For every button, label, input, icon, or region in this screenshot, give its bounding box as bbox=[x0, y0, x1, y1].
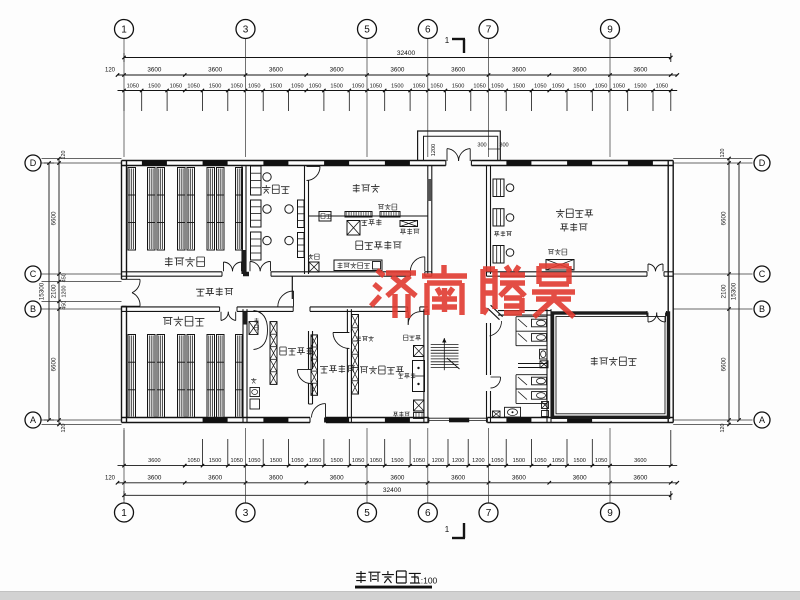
svg-text:9: 9 bbox=[607, 508, 613, 519]
svg-text:6600: 6600 bbox=[721, 357, 728, 372]
svg-text:3600: 3600 bbox=[208, 474, 223, 481]
svg-text:1500: 1500 bbox=[513, 83, 525, 89]
svg-text:1: 1 bbox=[445, 525, 450, 534]
svg-text:120: 120 bbox=[720, 149, 726, 158]
svg-text:3600: 3600 bbox=[390, 474, 405, 481]
svg-text:3600: 3600 bbox=[634, 458, 646, 464]
svg-text:6: 6 bbox=[425, 25, 431, 36]
svg-text:3600: 3600 bbox=[633, 474, 648, 481]
svg-text:B: B bbox=[759, 304, 765, 314]
svg-text:1500: 1500 bbox=[148, 83, 160, 89]
svg-text:7: 7 bbox=[486, 508, 492, 519]
svg-text:1050: 1050 bbox=[352, 458, 364, 464]
svg-text:1050: 1050 bbox=[534, 83, 546, 89]
svg-text:1050: 1050 bbox=[291, 83, 303, 89]
svg-text:1500: 1500 bbox=[209, 83, 221, 89]
svg-text:1050: 1050 bbox=[170, 83, 182, 89]
svg-text:120: 120 bbox=[105, 475, 116, 481]
svg-text:3600: 3600 bbox=[208, 67, 223, 74]
svg-text:3600: 3600 bbox=[330, 474, 345, 481]
svg-text:1050: 1050 bbox=[595, 458, 607, 464]
svg-text:1050: 1050 bbox=[370, 458, 382, 464]
svg-text:1500: 1500 bbox=[209, 458, 221, 464]
svg-text:1200: 1200 bbox=[472, 458, 484, 464]
svg-text:3: 3 bbox=[243, 25, 249, 36]
svg-text:32400: 32400 bbox=[397, 50, 416, 57]
svg-text:1050: 1050 bbox=[656, 83, 668, 89]
svg-text:3600: 3600 bbox=[451, 474, 466, 481]
svg-text:1050: 1050 bbox=[352, 83, 364, 89]
svg-text:3600: 3600 bbox=[147, 474, 162, 481]
svg-text:1050: 1050 bbox=[430, 83, 442, 89]
svg-text:1050: 1050 bbox=[595, 83, 607, 89]
svg-text:3600: 3600 bbox=[269, 67, 284, 74]
svg-text:2100: 2100 bbox=[721, 284, 728, 299]
svg-text:1050: 1050 bbox=[248, 83, 260, 89]
svg-text:6: 6 bbox=[425, 508, 431, 519]
svg-text:15300: 15300 bbox=[39, 282, 46, 300]
svg-text:1: 1 bbox=[121, 508, 127, 519]
svg-text:1050: 1050 bbox=[613, 83, 625, 89]
svg-text:15300: 15300 bbox=[731, 282, 738, 300]
svg-text:1050: 1050 bbox=[248, 458, 260, 464]
svg-text:32400: 32400 bbox=[383, 487, 402, 494]
svg-text:3600: 3600 bbox=[330, 67, 345, 74]
svg-text:1200: 1200 bbox=[62, 286, 68, 298]
svg-text:5: 5 bbox=[364, 25, 370, 36]
svg-text:1050: 1050 bbox=[187, 458, 199, 464]
svg-text:1050: 1050 bbox=[127, 83, 139, 89]
svg-text:3600: 3600 bbox=[512, 474, 527, 481]
svg-text:2100: 2100 bbox=[51, 284, 58, 299]
svg-text:1500: 1500 bbox=[452, 83, 464, 89]
svg-text:3600: 3600 bbox=[269, 474, 284, 481]
svg-text:1050: 1050 bbox=[413, 83, 425, 89]
svg-text:450: 450 bbox=[62, 301, 68, 310]
svg-text:1050: 1050 bbox=[534, 458, 546, 464]
svg-text:3600: 3600 bbox=[390, 67, 405, 74]
svg-text:3600: 3600 bbox=[147, 67, 162, 74]
svg-text:1500: 1500 bbox=[513, 458, 525, 464]
svg-text:1200: 1200 bbox=[432, 458, 444, 464]
svg-text:1050: 1050 bbox=[309, 83, 321, 89]
svg-text:1050: 1050 bbox=[491, 83, 503, 89]
svg-text:C: C bbox=[30, 269, 37, 279]
svg-text:3600: 3600 bbox=[573, 474, 588, 481]
svg-text:1050: 1050 bbox=[230, 458, 242, 464]
svg-text:7: 7 bbox=[486, 25, 492, 36]
svg-text:1500: 1500 bbox=[391, 458, 403, 464]
svg-text:6600: 6600 bbox=[721, 211, 728, 226]
svg-text:1050: 1050 bbox=[413, 458, 425, 464]
svg-text:D: D bbox=[30, 158, 37, 168]
svg-text:1050: 1050 bbox=[473, 83, 485, 89]
svg-text:1050: 1050 bbox=[230, 83, 242, 89]
svg-text:1500: 1500 bbox=[330, 458, 342, 464]
svg-text:3600: 3600 bbox=[633, 67, 648, 74]
svg-text:300: 300 bbox=[477, 143, 486, 149]
svg-text:1: 1 bbox=[121, 25, 127, 36]
svg-text:3600: 3600 bbox=[451, 67, 466, 74]
svg-text:1050: 1050 bbox=[291, 458, 303, 464]
svg-text:1500: 1500 bbox=[270, 83, 282, 89]
svg-text:1500: 1500 bbox=[634, 83, 646, 89]
svg-text:1:100: 1:100 bbox=[416, 576, 438, 586]
svg-text:1050: 1050 bbox=[309, 458, 321, 464]
svg-text:1500: 1500 bbox=[270, 458, 282, 464]
svg-text:1: 1 bbox=[445, 36, 450, 45]
svg-text:1050: 1050 bbox=[187, 83, 199, 89]
svg-text:3600: 3600 bbox=[148, 458, 160, 464]
svg-text:5: 5 bbox=[364, 508, 370, 519]
svg-text:1050: 1050 bbox=[491, 458, 503, 464]
svg-text:6600: 6600 bbox=[51, 357, 58, 372]
svg-text:1500: 1500 bbox=[573, 83, 585, 89]
svg-text:D: D bbox=[759, 158, 766, 168]
svg-text:1200: 1200 bbox=[452, 458, 464, 464]
svg-text:3: 3 bbox=[243, 508, 249, 519]
svg-text:A: A bbox=[759, 415, 765, 425]
svg-text:1050: 1050 bbox=[370, 83, 382, 89]
svg-text:120: 120 bbox=[105, 68, 116, 74]
svg-text:A: A bbox=[30, 415, 36, 425]
svg-text:1050: 1050 bbox=[552, 83, 564, 89]
svg-text:300: 300 bbox=[499, 143, 508, 149]
svg-text:6600: 6600 bbox=[51, 211, 58, 226]
svg-text:1050: 1050 bbox=[552, 458, 564, 464]
svg-text:1500: 1500 bbox=[573, 458, 585, 464]
svg-text:B: B bbox=[30, 304, 36, 314]
svg-text:1200: 1200 bbox=[431, 144, 437, 156]
svg-text:C: C bbox=[759, 269, 766, 279]
svg-text:450: 450 bbox=[62, 273, 68, 282]
svg-text:3600: 3600 bbox=[512, 67, 527, 74]
svg-text:3600: 3600 bbox=[573, 67, 588, 74]
svg-text:9: 9 bbox=[607, 25, 613, 36]
svg-text:1500: 1500 bbox=[391, 83, 403, 89]
svg-text:1500: 1500 bbox=[330, 83, 342, 89]
